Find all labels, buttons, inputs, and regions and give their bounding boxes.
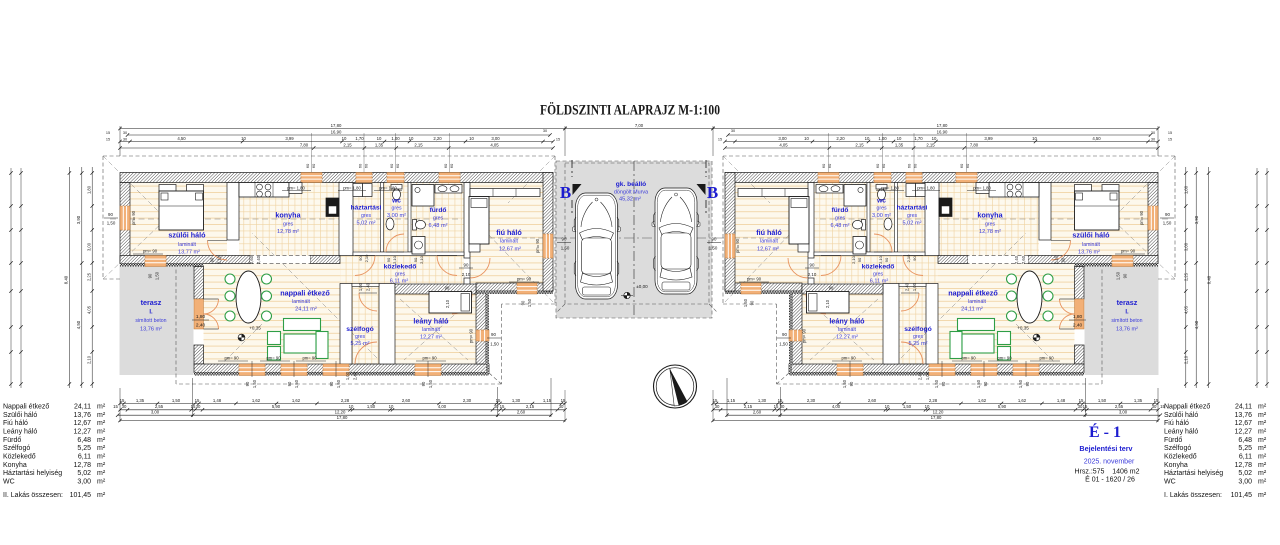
- svg-text:5,90: 5,90: [998, 404, 1007, 409]
- svg-text:17,80: 17,80: [931, 415, 942, 420]
- svg-text:30: 30: [1078, 404, 1083, 409]
- svg-text:m²: m²: [97, 470, 106, 477]
- svg-text:konyha: konyha: [275, 211, 301, 220]
- svg-text:gres: gres: [873, 272, 883, 278]
- svg-text:gres: gres: [283, 222, 293, 228]
- svg-text:pm= 90: pm= 90: [422, 356, 437, 361]
- svg-text:12,67 m²: 12,67 m²: [499, 247, 521, 253]
- svg-text:90: 90: [358, 256, 363, 261]
- svg-text:gres: gres: [913, 334, 923, 340]
- svg-text:5,02: 5,02: [77, 470, 91, 477]
- svg-text:1,30: 1,30: [512, 398, 521, 403]
- svg-text:90: 90: [884, 257, 889, 262]
- svg-text:6,48 m²: 6,48 m²: [429, 223, 448, 229]
- svg-text:döngölt Murva: döngölt Murva: [614, 190, 648, 196]
- svg-text:szülői háló: szülői háló: [1072, 231, 1110, 240]
- svg-text:3,00: 3,00: [778, 136, 787, 141]
- svg-text:m²: m²: [97, 478, 106, 485]
- svg-text:1,80: 1,80: [1073, 314, 1083, 320]
- svg-text:1,00: 1,00: [345, 371, 350, 380]
- svg-text:2,10: 2,10: [217, 255, 222, 264]
- svg-text:m²: m²: [97, 445, 106, 452]
- svg-text:12,67: 12,67: [1234, 420, 1252, 427]
- svg-text:30: 30: [123, 131, 127, 135]
- svg-text:6,11 m²: 6,11 m²: [390, 279, 409, 285]
- svg-text:1,50: 1,50: [934, 379, 939, 388]
- svg-text:4,05: 4,05: [490, 142, 499, 147]
- svg-text:1,35: 1,35: [375, 142, 384, 147]
- svg-text:15: 15: [1168, 138, 1172, 142]
- svg-text:8,40: 8,40: [1207, 275, 1212, 284]
- svg-text:1,80: 1,80: [196, 314, 206, 320]
- svg-text:3,00 m²: 3,00 m²: [387, 213, 406, 219]
- svg-text:17,80: 17,80: [331, 123, 342, 128]
- svg-text:gres: gres: [876, 206, 886, 212]
- svg-text:30: 30: [559, 404, 564, 409]
- svg-text:90: 90: [464, 263, 469, 268]
- svg-text:6,11: 6,11: [78, 453, 91, 460]
- svg-text:laminált: laminált: [760, 239, 778, 245]
- svg-text:12,78 m²: 12,78 m²: [277, 229, 299, 235]
- svg-text:90: 90: [287, 381, 292, 386]
- svg-text:90: 90: [912, 256, 917, 261]
- svg-text:3,90: 3,90: [76, 215, 81, 224]
- svg-text:60: 60: [358, 163, 363, 168]
- svg-text:2,15: 2,15: [414, 142, 423, 147]
- svg-text:60: 60: [389, 163, 394, 168]
- svg-text:5,02: 5,02: [1238, 470, 1252, 477]
- svg-text:12,27 m²: 12,27 m²: [836, 335, 858, 341]
- svg-text:gres: gres: [985, 222, 995, 228]
- svg-text:10: 10: [389, 404, 394, 409]
- svg-text:2,40: 2,40: [353, 371, 358, 380]
- svg-text:10: 10: [932, 136, 937, 141]
- svg-text:Háztartási helyiség: Háztartási helyiség: [1164, 470, 1223, 477]
- svg-text:1,50: 1,50: [428, 379, 433, 388]
- svg-text:1,50: 1,50: [490, 342, 499, 347]
- svg-text:pm= 90: pm= 90: [747, 277, 762, 282]
- svg-text:m²: m²: [1258, 404, 1267, 411]
- svg-text:90: 90: [829, 286, 834, 291]
- svg-text:5,25 m²: 5,25 m²: [351, 341, 370, 347]
- svg-text:5,02 m²: 5,02 m²: [357, 221, 376, 227]
- svg-text:10: 10: [377, 136, 382, 141]
- svg-text:60: 60: [305, 163, 310, 168]
- svg-text:+0,35: +0,35: [249, 326, 261, 331]
- svg-text:m²: m²: [97, 453, 106, 460]
- svg-text:2,25: 2,25: [86, 272, 91, 281]
- svg-text:10: 10: [349, 404, 354, 409]
- svg-text:90: 90: [983, 381, 988, 386]
- svg-text:pm= 1,80: pm= 1,80: [881, 186, 899, 191]
- svg-text:1,80: 1,80: [1184, 185, 1189, 194]
- svg-text:10: 10: [925, 404, 930, 409]
- svg-text:I. Lakás összesen:: I. Lakás összesen:: [1164, 492, 1222, 499]
- svg-text:60: 60: [364, 163, 369, 168]
- svg-text:90: 90: [491, 332, 496, 337]
- svg-text:pm= 90: pm= 90: [841, 356, 856, 361]
- svg-text:pm= 90: pm= 90: [1121, 249, 1136, 254]
- svg-text:13,76 m²: 13,76 m²: [1078, 250, 1100, 256]
- svg-text:szélfogó: szélfogó: [346, 326, 374, 333]
- svg-text:laminált: laminált: [422, 327, 440, 333]
- svg-text:90: 90: [810, 263, 815, 268]
- svg-text:1,50: 1,50: [1098, 398, 1107, 403]
- svg-text:60: 60: [913, 163, 918, 168]
- svg-text:2,25: 2,25: [1184, 272, 1189, 281]
- svg-text:90: 90: [329, 381, 334, 386]
- svg-text:2,10: 2,10: [808, 272, 817, 277]
- svg-text:pm= 1,80: pm= 1,80: [379, 186, 397, 191]
- svg-text:90: 90: [148, 273, 153, 278]
- svg-text:gres: gres: [361, 213, 371, 219]
- svg-text:5,25 m²: 5,25 m²: [909, 341, 928, 347]
- svg-text:90: 90: [1123, 273, 1128, 278]
- svg-text:pm= 90: pm= 90: [224, 356, 239, 361]
- svg-text:101,45: 101,45: [1231, 492, 1253, 499]
- svg-text:10: 10: [469, 136, 474, 141]
- svg-text:30: 30: [196, 404, 201, 409]
- svg-text:Konyha: Konyha: [1164, 462, 1188, 469]
- svg-text:pm= 90: pm= 90: [535, 238, 540, 253]
- svg-text:1,70: 1,70: [914, 136, 923, 141]
- svg-text:2,40: 2,40: [918, 371, 923, 380]
- svg-text:1,50: 1,50: [252, 379, 257, 388]
- svg-text:2,60: 2,60: [249, 255, 254, 264]
- svg-text:1,50: 1,50: [294, 379, 299, 388]
- svg-text:m²: m²: [97, 492, 106, 499]
- svg-text:16,90: 16,90: [937, 129, 948, 134]
- svg-text:II. Lakás összesen:: II. Lakás összesen:: [3, 492, 63, 499]
- svg-text:háztartási: háztartási: [351, 205, 382, 212]
- svg-text:10: 10: [1032, 136, 1037, 141]
- svg-text:15: 15: [556, 138, 560, 142]
- svg-text:90: 90: [413, 257, 418, 262]
- svg-text:90: 90: [421, 381, 426, 386]
- svg-text:90: 90: [750, 300, 755, 305]
- svg-text:10: 10: [897, 136, 902, 141]
- svg-text:1,48: 1,48: [1057, 398, 1066, 403]
- svg-text:2,40: 2,40: [196, 323, 206, 329]
- svg-text:I.: I.: [1125, 310, 1129, 316]
- svg-text:laminált: laminált: [968, 299, 986, 305]
- svg-text:3,00: 3,00: [1119, 410, 1128, 415]
- svg-text:15: 15: [774, 404, 779, 409]
- svg-text:6,48: 6,48: [77, 437, 91, 444]
- svg-text:90: 90: [782, 332, 787, 337]
- svg-text:m²: m²: [97, 420, 106, 427]
- svg-text:1,50: 1,50: [709, 246, 718, 251]
- svg-text:24,11: 24,11: [1235, 404, 1252, 411]
- svg-text:60: 60: [395, 163, 400, 168]
- svg-text:2,20: 2,20: [836, 136, 845, 141]
- svg-text:1,00: 1,00: [925, 371, 930, 380]
- svg-text:2,15: 2,15: [926, 142, 935, 147]
- svg-text:2,20: 2,20: [433, 136, 442, 141]
- svg-text:2,55: 2,55: [155, 404, 164, 409]
- svg-text:szülői háló: szülői háló: [168, 231, 206, 240]
- svg-text:4,05: 4,05: [86, 305, 91, 314]
- svg-text:10: 10: [885, 404, 890, 409]
- svg-text:m²: m²: [1258, 492, 1267, 499]
- svg-text:Közlekedő: Közlekedő: [3, 453, 36, 460]
- svg-text:15: 15: [496, 398, 501, 403]
- svg-text:I.: I.: [149, 310, 153, 316]
- svg-text:3,00: 3,00: [151, 410, 160, 415]
- svg-text:2,40: 2,40: [256, 255, 261, 264]
- svg-text:laminált: laminált: [292, 299, 310, 305]
- svg-text:5,25: 5,25: [1238, 445, 1252, 452]
- svg-text:4,50: 4,50: [1092, 136, 1101, 141]
- svg-text:1,50: 1,50: [1116, 271, 1121, 280]
- svg-text:1,35: 1,35: [136, 398, 145, 403]
- svg-text:4,00: 4,00: [438, 404, 447, 409]
- svg-text:+0,35: +0,35: [1017, 326, 1029, 331]
- svg-text:fürdő: fürdő: [430, 207, 447, 214]
- svg-text:É - 1: É - 1: [1089, 422, 1121, 441]
- svg-text:3,00: 3,00: [1184, 242, 1189, 251]
- svg-text:60: 60: [449, 163, 454, 168]
- svg-text:m²: m²: [97, 404, 106, 411]
- svg-text:2,55: 2,55: [1115, 404, 1124, 409]
- svg-text:15: 15: [713, 398, 718, 403]
- svg-text:2,40: 2,40: [366, 282, 371, 291]
- svg-text:Konyha: Konyha: [3, 462, 27, 469]
- svg-text:2,10: 2,10: [364, 254, 369, 263]
- svg-text:90: 90: [849, 381, 854, 386]
- svg-text:60: 60: [881, 163, 886, 168]
- svg-text:90: 90: [1061, 257, 1066, 262]
- svg-text:2,40: 2,40: [1014, 255, 1019, 264]
- svg-text:90: 90: [712, 237, 717, 242]
- svg-text:Nappali étkező: Nappali étkező: [3, 404, 49, 411]
- svg-text:1,50: 1,50: [155, 271, 160, 280]
- svg-text:1,70: 1,70: [355, 136, 364, 141]
- svg-text:2,30: 2,30: [807, 398, 816, 403]
- svg-text:2,28: 2,28: [929, 398, 938, 403]
- svg-text:1,50: 1,50: [779, 342, 788, 347]
- svg-text:pm= 90: pm= 90: [266, 356, 281, 361]
- svg-text:3,00 m²: 3,00 m²: [872, 213, 891, 219]
- svg-text:24,11 m²: 24,11 m²: [295, 307, 317, 313]
- svg-text:1,50: 1,50: [336, 379, 341, 388]
- svg-text:leány háló: leány háló: [829, 317, 865, 326]
- svg-text:13,76: 13,76: [1234, 412, 1252, 419]
- svg-text:12,78: 12,78: [1234, 462, 1252, 469]
- svg-text:12,27: 12,27: [73, 428, 91, 435]
- svg-text:5,25: 5,25: [77, 445, 91, 452]
- svg-text:7,80: 7,80: [300, 142, 309, 147]
- svg-text:4,05: 4,05: [1184, 305, 1189, 314]
- svg-text:3,99: 3,99: [984, 136, 993, 141]
- svg-text:60: 60: [965, 163, 970, 168]
- svg-text:101,45: 101,45: [70, 492, 92, 499]
- svg-text:nappali étkező: nappali étkező: [948, 289, 998, 298]
- svg-text:B: B: [707, 183, 718, 202]
- svg-text:1,15: 1,15: [543, 398, 552, 403]
- svg-text:1,50: 1,50: [367, 404, 376, 409]
- svg-text:30: 30: [1151, 131, 1155, 135]
- svg-text:Fiú háló: Fiú háló: [3, 420, 28, 427]
- svg-text:Hrsz.:575 1406 m2: Hrsz.:575 1406 m2: [1075, 469, 1140, 476]
- svg-text:pm= 1,80: pm= 1,80: [917, 186, 935, 191]
- svg-text:fiú háló: fiú háló: [756, 228, 782, 237]
- svg-text:pm= 90: pm= 90: [131, 210, 136, 225]
- svg-text:15: 15: [106, 138, 110, 142]
- svg-text:m²: m²: [1258, 428, 1267, 435]
- svg-text:1,62: 1,62: [1018, 398, 1027, 403]
- svg-text:15: 15: [113, 404, 118, 409]
- svg-text:15: 15: [195, 398, 200, 403]
- svg-text:6,48: 6,48: [1238, 437, 1252, 444]
- svg-text:10: 10: [241, 136, 246, 141]
- svg-text:90: 90: [386, 257, 391, 262]
- svg-text:2,10: 2,10: [851, 255, 856, 264]
- svg-text:WC: WC: [3, 478, 15, 485]
- svg-text:1,50: 1,50: [976, 379, 981, 388]
- svg-text:15: 15: [120, 398, 125, 403]
- svg-text:m²: m²: [1258, 453, 1267, 460]
- svg-text:Fürdő: Fürdő: [3, 437, 21, 444]
- svg-text:1,50: 1,50: [1018, 379, 1023, 388]
- svg-text:2,60: 2,60: [868, 398, 877, 403]
- svg-text:2,10: 2,10: [86, 355, 91, 364]
- svg-text:4,50: 4,50: [177, 136, 186, 141]
- svg-text:30: 30: [1151, 138, 1155, 142]
- svg-text:16,90: 16,90: [331, 129, 342, 134]
- svg-text:m²: m²: [97, 437, 106, 444]
- svg-text:wc: wc: [391, 198, 401, 205]
- svg-text:30: 30: [123, 138, 127, 142]
- svg-text:90: 90: [857, 257, 862, 262]
- svg-text:simított beton: simított beton: [135, 318, 166, 324]
- svg-text:gres: gres: [433, 216, 443, 222]
- svg-text:12,78 m²: 12,78 m²: [979, 229, 1001, 235]
- svg-text:12,20: 12,20: [933, 410, 944, 415]
- svg-text:1,00: 1,00: [358, 282, 363, 291]
- svg-text:1,62: 1,62: [292, 398, 301, 403]
- svg-text:pm= 90: pm= 90: [302, 356, 317, 361]
- svg-text:pm= 90: pm= 90: [961, 356, 976, 361]
- svg-text:1,35: 1,35: [895, 142, 904, 147]
- svg-text:2,10: 2,10: [1054, 255, 1059, 264]
- svg-text:pm= 90: pm= 90: [802, 328, 807, 343]
- svg-text:m²: m²: [1258, 437, 1267, 444]
- svg-text:1,50: 1,50: [903, 404, 912, 409]
- svg-text:2,10: 2,10: [825, 299, 830, 308]
- svg-text:4,50: 4,50: [76, 320, 81, 329]
- svg-text:17,80: 17,80: [337, 415, 348, 420]
- svg-text:2,60: 2,60: [517, 410, 526, 415]
- svg-text:1,00: 1,00: [878, 136, 887, 141]
- svg-text:2,30: 2,30: [463, 398, 472, 403]
- svg-text:laminált: laminált: [1082, 242, 1100, 248]
- svg-text:m²: m²: [1258, 420, 1267, 427]
- svg-text:1,50: 1,50: [1163, 221, 1172, 226]
- svg-text:13,77 m²: 13,77 m²: [178, 250, 200, 256]
- svg-text:6,48 m²: 6,48 m²: [831, 223, 850, 229]
- svg-text:m²: m²: [1258, 412, 1267, 419]
- svg-text:1,48: 1,48: [213, 398, 222, 403]
- svg-text:2,28: 2,28: [341, 398, 350, 403]
- svg-text:1,50: 1,50: [107, 221, 116, 226]
- svg-text:12,67: 12,67: [73, 420, 91, 427]
- svg-text:24,11 m²: 24,11 m²: [961, 307, 983, 313]
- svg-text:Fürdő: Fürdő: [1164, 437, 1182, 444]
- svg-text:2,60: 2,60: [753, 410, 762, 415]
- svg-text:1,62: 1,62: [252, 398, 261, 403]
- svg-text:3,99: 3,99: [285, 136, 294, 141]
- svg-text:m²: m²: [97, 462, 106, 469]
- svg-text:m²: m²: [1258, 470, 1267, 477]
- svg-text:2,15: 2,15: [343, 142, 352, 147]
- svg-text:13,76: 13,76: [73, 412, 91, 419]
- svg-text:1,00: 1,00: [912, 282, 917, 291]
- svg-text:2,10: 2,10: [392, 255, 397, 264]
- svg-text:10: 10: [804, 136, 809, 141]
- svg-text:4,00: 4,00: [832, 404, 841, 409]
- svg-text:2,10: 2,10: [419, 255, 424, 264]
- svg-text:Közlekedő: Közlekedő: [1164, 453, 1197, 460]
- svg-text:közlekedő: közlekedő: [384, 264, 417, 271]
- svg-text:1,15: 1,15: [727, 398, 736, 403]
- svg-text:1,35: 1,35: [1134, 398, 1143, 403]
- svg-text:13,76 m²: 13,76 m²: [140, 327, 162, 333]
- svg-text:2,10: 2,10: [445, 299, 450, 308]
- svg-text:13,76 m²: 13,76 m²: [1116, 327, 1138, 333]
- svg-text:gres: gres: [395, 272, 405, 278]
- svg-text:3,00: 3,00: [77, 478, 91, 485]
- svg-text:30: 30: [543, 129, 547, 133]
- svg-text:3,00: 3,00: [86, 242, 91, 251]
- svg-text:gk. beálló: gk. beálló: [616, 181, 646, 188]
- svg-text:konyha: konyha: [977, 211, 1003, 220]
- svg-text:15: 15: [500, 404, 505, 409]
- svg-text:pm= 1,80: pm= 1,80: [287, 186, 305, 191]
- svg-text:90: 90: [562, 237, 567, 242]
- svg-text:12,78: 12,78: [73, 462, 91, 469]
- svg-text:pm= 1,80: pm= 1,80: [973, 186, 991, 191]
- svg-text:m²: m²: [1258, 462, 1267, 469]
- svg-text:laminált: laminált: [838, 327, 856, 333]
- svg-text:1,50: 1,50: [172, 398, 181, 403]
- svg-text:gres: gres: [835, 216, 845, 222]
- svg-text:1,50: 1,50: [561, 246, 570, 251]
- svg-text:2,10: 2,10: [462, 272, 471, 277]
- svg-text:FÖLDSZINTI ALAPRAJZ M-1:100: FÖLDSZINTI ALAPRAJZ M-1:100: [540, 102, 720, 119]
- svg-text:30: 30: [731, 129, 735, 133]
- svg-text:wc: wc: [876, 198, 886, 205]
- svg-text:gres: gres: [355, 334, 365, 340]
- svg-text:12,20: 12,20: [335, 410, 346, 415]
- svg-text:terasz: terasz: [1117, 298, 1138, 307]
- svg-text:30: 30: [122, 404, 127, 409]
- svg-text:60: 60: [821, 163, 826, 168]
- svg-text:90: 90: [941, 381, 946, 386]
- svg-text:3,90: 3,90: [1194, 215, 1199, 224]
- svg-text:laminált: laminált: [500, 239, 518, 245]
- svg-text:1,00: 1,00: [391, 136, 400, 141]
- svg-text:Szélfogó: Szélfogó: [3, 445, 30, 452]
- svg-text:Háztartási helyiség: Háztartási helyiség: [3, 470, 62, 477]
- svg-text:90: 90: [521, 300, 526, 305]
- svg-text:m²: m²: [97, 428, 106, 435]
- svg-text:2,60: 2,60: [1021, 255, 1026, 264]
- svg-text:7,80: 7,80: [970, 142, 979, 147]
- svg-text:6,11: 6,11: [1239, 453, 1252, 460]
- svg-text:gres: gres: [391, 206, 401, 212]
- svg-text:12,27 m²: 12,27 m²: [420, 335, 442, 341]
